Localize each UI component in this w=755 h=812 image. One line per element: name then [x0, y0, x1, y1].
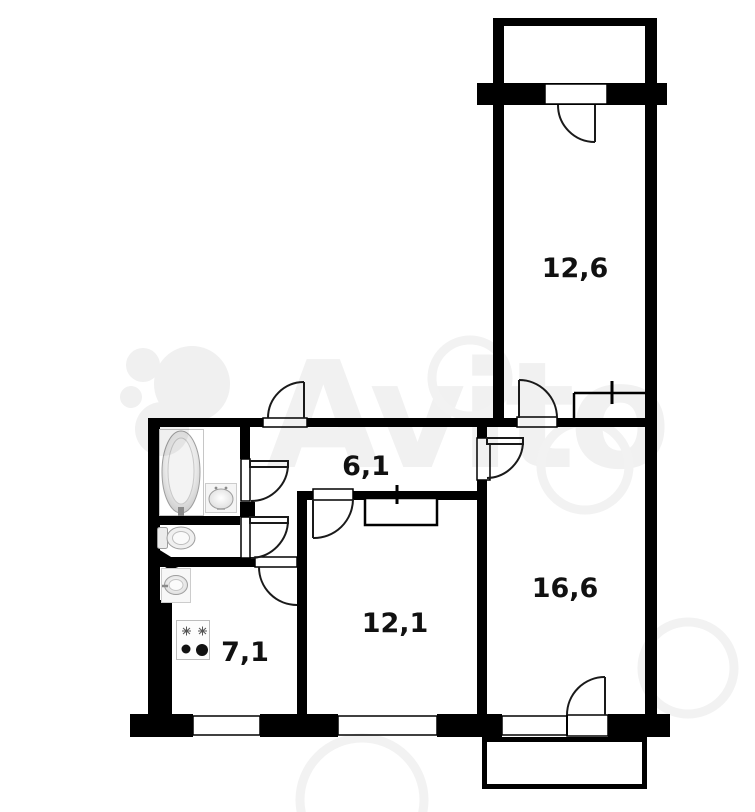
bath-toilet-divider — [158, 516, 240, 525]
balcony-top-right-wall — [645, 18, 657, 83]
bottom-wall-d — [608, 714, 670, 737]
toilet-door-leaf — [250, 517, 288, 523]
kitchen-door-slot — [255, 557, 297, 567]
toilet-door-slot — [241, 517, 250, 558]
left-exterior-wall-wide — [148, 600, 172, 715]
kitchen-divider-wall — [297, 491, 307, 715]
area-label-kitchen: 7,1 — [221, 637, 269, 668]
balcony-door-slot — [567, 715, 608, 736]
kitchen-sink-icon — [162, 569, 191, 603]
room-right-left-wall-b — [477, 480, 487, 715]
wardrobe-middle-room — [365, 498, 437, 525]
window-kitchen — [193, 716, 260, 735]
balcony-top-wall — [493, 18, 657, 26]
floorplan-svg: 12,6 6,1 16,6 12,1 7,1 Avito — [0, 0, 755, 812]
area-label-middle-room: 12,1 — [362, 608, 429, 639]
bath-door-slot — [241, 459, 250, 501]
bottom-wall-a — [130, 714, 193, 737]
bottom-wall-c — [437, 714, 502, 737]
stove-icon — [177, 621, 210, 660]
window-right-room — [502, 716, 567, 735]
san-wall-stub — [240, 502, 255, 517]
washbasin-icon — [206, 484, 237, 513]
area-label-top-room: 12,6 — [542, 253, 609, 284]
balcony-bottom — [485, 740, 645, 787]
floorplan-image: 12,6 6,1 16,6 12,1 7,1 Avito — [0, 0, 755, 812]
area-label-right-room: 16,6 — [532, 573, 599, 604]
window-top-balcony — [545, 84, 607, 104]
balcony-top-left-wall — [493, 18, 504, 83]
san-wall-upper — [240, 427, 250, 459]
window-middle-room — [338, 716, 437, 735]
toilet-icon — [158, 527, 196, 549]
bottom-wall-b — [260, 714, 338, 737]
